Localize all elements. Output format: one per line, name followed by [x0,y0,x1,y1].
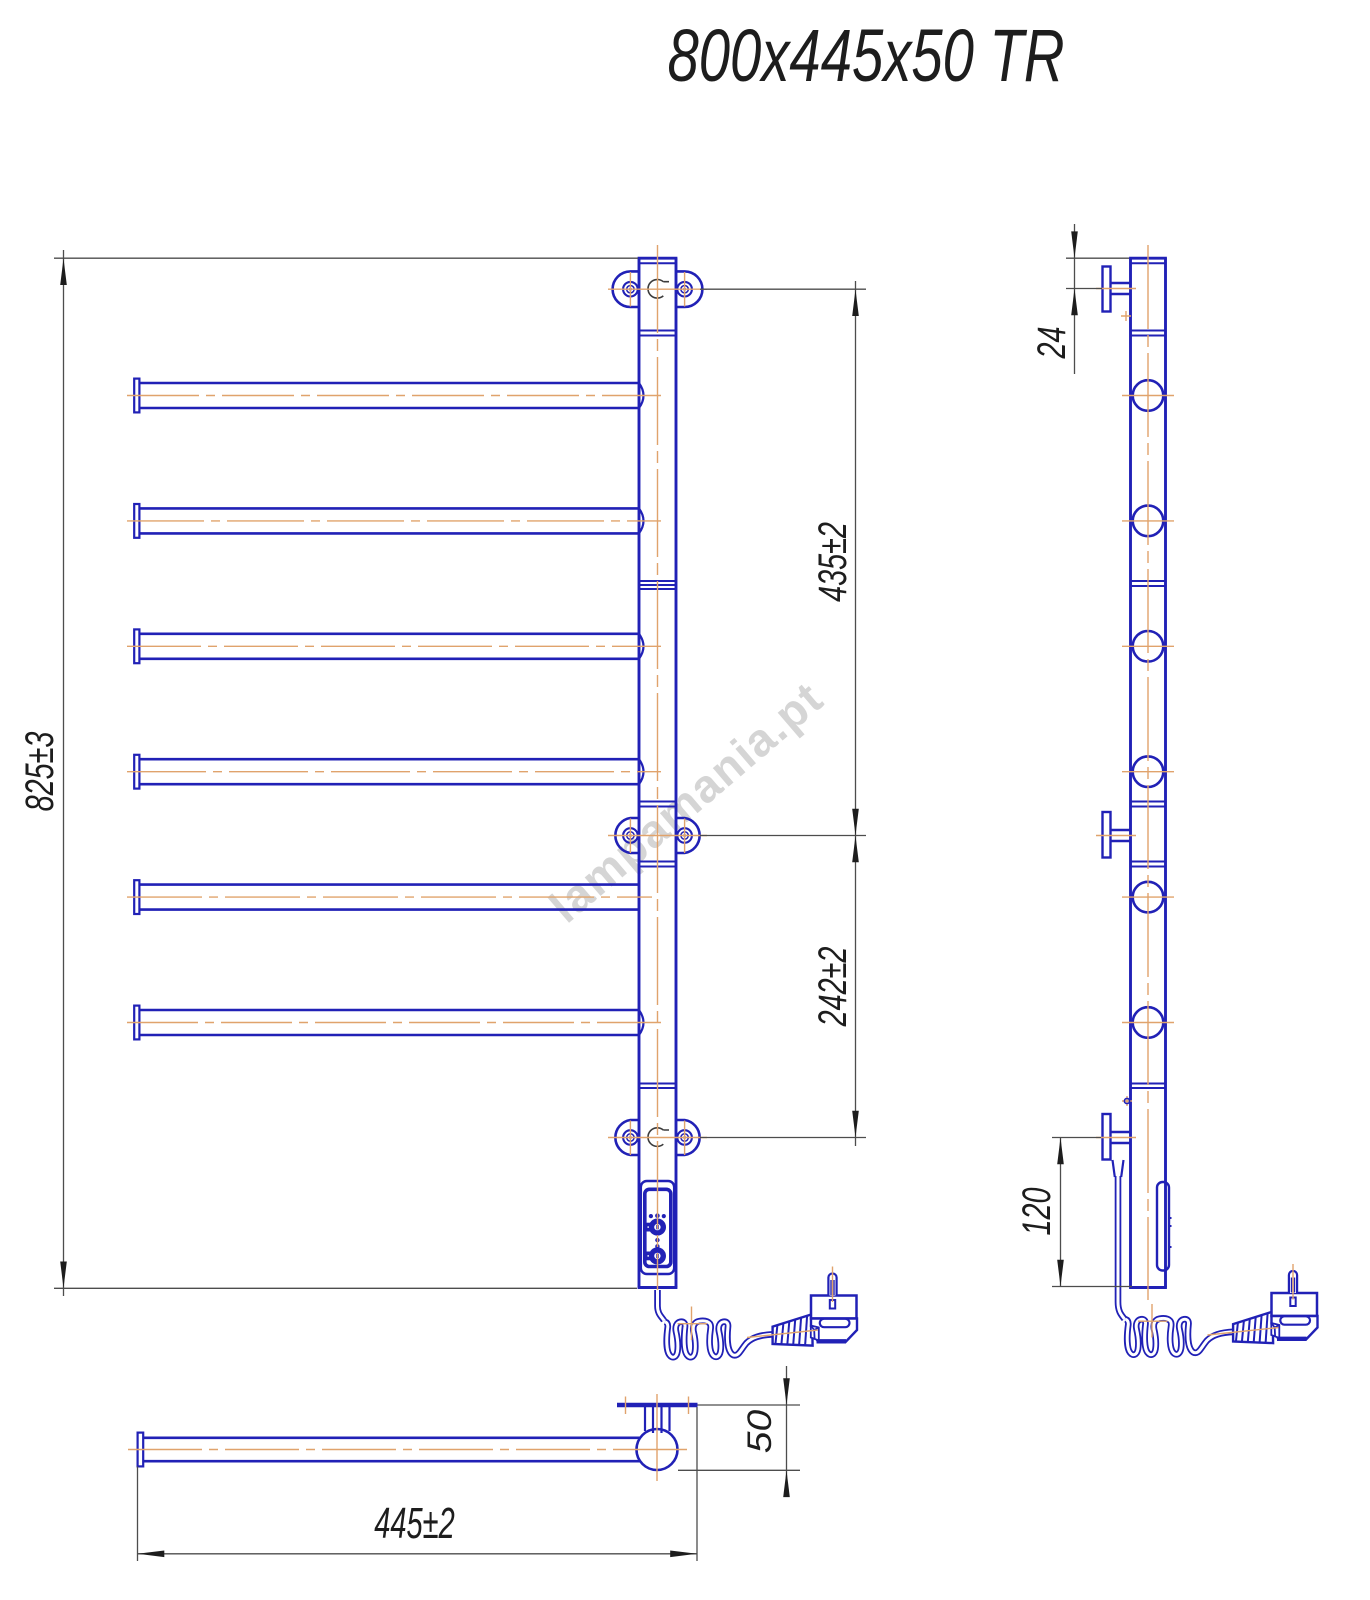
svg-text:242±2: 242±2 [810,947,855,1028]
svg-text:120: 120 [1014,1187,1059,1236]
svg-text:825±3: 825±3 [17,731,62,811]
svg-text:435±2: 435±2 [810,522,855,602]
svg-text:50: 50 [740,1409,778,1453]
svg-text:24: 24 [1029,326,1074,359]
svg-text:445±2: 445±2 [374,1498,455,1548]
svg-text:800x445x50 TR: 800x445x50 TR [667,15,1064,97]
